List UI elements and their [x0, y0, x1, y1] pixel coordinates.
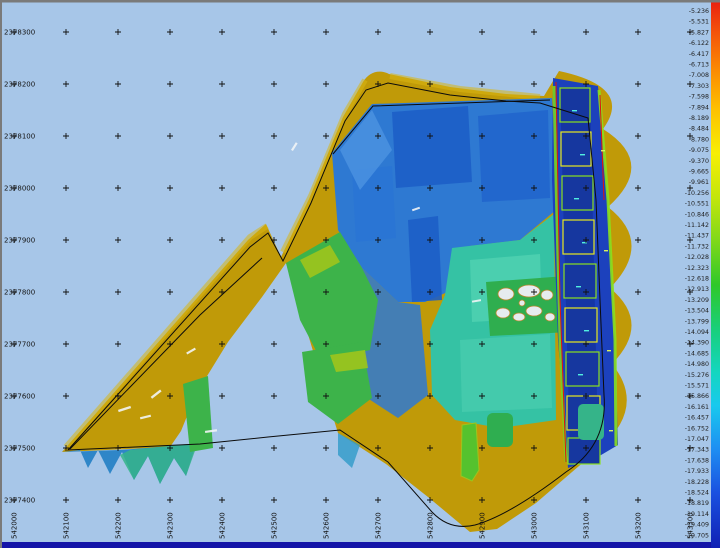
- depth-scale-label: -5.236: [689, 8, 709, 15]
- survey-map-window: 2378300237820023781002378000237790023778…: [0, 0, 720, 548]
- depth-scale-label: -19.409: [685, 522, 709, 529]
- easting-label: 543100: [583, 512, 591, 539]
- easting-label: 542500: [271, 512, 279, 539]
- window-border-left: [0, 0, 2, 548]
- depth-scale-label: -12.323: [685, 265, 709, 272]
- south-green-blob-1: [461, 423, 479, 481]
- easting-label: 542700: [375, 512, 383, 539]
- depth-scale-label: -9.961: [689, 179, 709, 186]
- colorbar: [711, 0, 720, 548]
- depth-scale-label: -13.209: [685, 297, 709, 304]
- depth-scale-label: -16.161: [685, 404, 709, 411]
- easting-label: 542400: [219, 512, 227, 539]
- depth-scale-label: -18.819: [685, 500, 709, 507]
- depth-scale-label: -8.484: [689, 126, 709, 133]
- easting-label: 542200: [115, 512, 123, 539]
- status-bar: [0, 542, 711, 548]
- depth-scale-label: -7.008: [689, 72, 709, 79]
- bathymetry-map-canvas[interactable]: 2378300237820023781002378000237790023778…: [0, 0, 720, 548]
- depth-scale-label: -8.189: [689, 115, 709, 122]
- depth-scale-label: -13.799: [685, 318, 709, 325]
- easting-label: 543000: [531, 512, 539, 539]
- northing-label: 2377800: [4, 289, 35, 297]
- depth-scale-label: -14.390: [685, 340, 709, 347]
- depth-scale-label: -17.047: [685, 436, 709, 443]
- south-teal-blob: [578, 404, 604, 440]
- depth-scale-label: -18.524: [685, 490, 709, 497]
- depth-scale-label: -7.894: [689, 104, 709, 111]
- northing-label: 2378200: [4, 81, 35, 89]
- depth-scale-label: -11.732: [685, 243, 709, 250]
- depth-scale-label: -10.256: [685, 190, 709, 197]
- easting-label: 542300: [167, 512, 175, 539]
- depth-scale-label: -14.094: [685, 329, 709, 336]
- northing-label: 2377700: [4, 341, 35, 349]
- depth-scale-label: -9.075: [689, 147, 709, 154]
- deep-blue-block-2: [478, 110, 550, 202]
- easting-label: 542000: [11, 512, 19, 539]
- northing-label: 2377500: [4, 445, 35, 453]
- depth-scale-label: -15.571: [685, 383, 709, 390]
- depth-scale-label: -15.866: [685, 393, 709, 400]
- depth-scale-label: -12.618: [685, 276, 709, 283]
- depth-scale-label: -11.142: [685, 222, 709, 229]
- northing-label: 2377600: [4, 393, 35, 401]
- south-green-blob-2: [487, 413, 513, 447]
- depth-scale-label: -14.980: [685, 361, 709, 368]
- depth-scale-label: -6.417: [689, 51, 709, 58]
- easting-label: 542900: [479, 512, 487, 539]
- depth-scale-label: -16.457: [685, 415, 709, 422]
- deep-blue-block-3: [408, 216, 442, 302]
- depth-scale-label: -19.114: [685, 511, 709, 518]
- depth-scale-label: -12.028: [685, 254, 709, 261]
- depth-scale-label: -6.122: [689, 40, 709, 47]
- depth-scale-label: -8.780: [689, 136, 709, 143]
- depth-scale-label: -11.437: [685, 233, 709, 240]
- teal-light-2: [460, 334, 552, 412]
- depth-scale-label: -10.846: [685, 211, 709, 218]
- northing-label: 2377400: [4, 497, 35, 505]
- depth-scale-label: -5.827: [689, 29, 709, 36]
- window-border-top: [0, 0, 720, 3]
- easting-label: 542100: [63, 512, 71, 539]
- depth-scale-label: -9.665: [689, 169, 709, 176]
- depth-scale-label: -15.276: [685, 372, 709, 379]
- deep-blue-block-1: [392, 106, 472, 188]
- depth-scale-label: -17.933: [685, 468, 709, 475]
- depth-scale-label: -5.531: [689, 19, 709, 26]
- depth-scale-label: -13.504: [685, 308, 709, 315]
- easting-label: 542800: [427, 512, 435, 539]
- depth-scale-label: -19.705: [685, 532, 709, 539]
- northing-label: 2377900: [4, 237, 35, 245]
- northing-label: 2378100: [4, 133, 35, 141]
- depth-scale-label: -6.713: [689, 62, 709, 69]
- depth-scale-label: -14.685: [685, 350, 709, 357]
- depth-scale-label: -17.343: [685, 447, 709, 454]
- depth-scale-label: -7.303: [689, 83, 709, 90]
- northing-label: 2378300: [4, 29, 35, 37]
- easting-label: 542600: [323, 512, 331, 539]
- depth-scale-label: -12.913: [685, 286, 709, 293]
- depth-scale-label: -16.752: [685, 425, 709, 432]
- depth-scale-label: -17.638: [685, 457, 709, 464]
- easting-label: 543200: [635, 512, 643, 539]
- depth-scale-label: -18.228: [685, 479, 709, 486]
- northing-label: 2378000: [4, 185, 35, 193]
- depth-scale-label: -7.598: [689, 94, 709, 101]
- depth-scale-label: -9.370: [689, 158, 709, 165]
- depth-scale-label: -10.551: [685, 201, 709, 208]
